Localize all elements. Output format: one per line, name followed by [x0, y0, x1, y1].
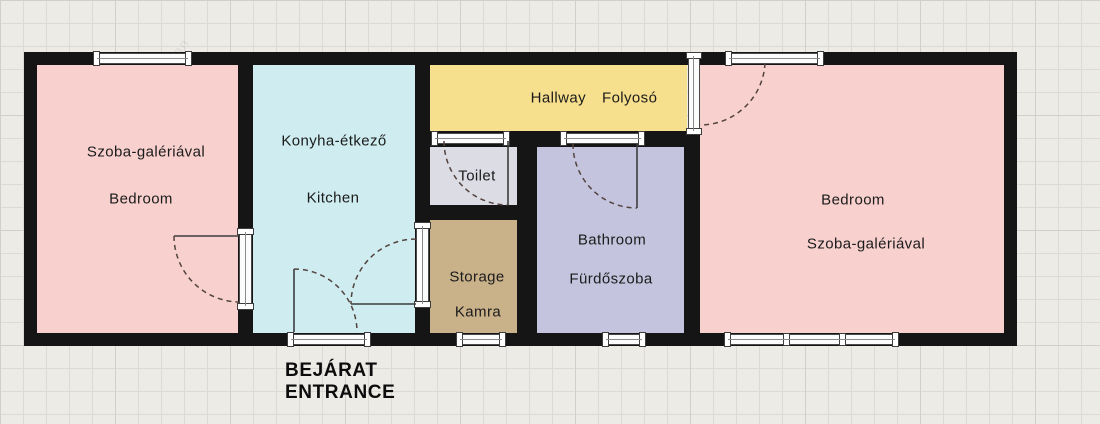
wall-outer-right — [1004, 52, 1017, 346]
wall-outer-left — [24, 52, 37, 346]
label-entrance-en: ENTRANCE — [285, 382, 395, 404]
door-opening-bedroom-left — [239, 230, 252, 308]
floor-plan: ingatlan ingatlan ingatlan ingatlan inga… — [0, 0, 1100, 424]
label-bedroom-right-en: Bedroom — [821, 192, 885, 209]
label-entrance: BEJÁRAT ENTRANCE — [285, 360, 395, 404]
label-hallway: Hallway Folyosó — [531, 90, 658, 107]
label-bathroom-en: Bathroom — [578, 232, 646, 249]
wall-bathroom-bedroom — [684, 131, 700, 333]
door-opening-storage — [416, 224, 429, 306]
label-bedroom-left-hu: Szoba-galériával — [87, 144, 205, 161]
label-bedroom-left-en: Bedroom — [109, 191, 173, 208]
label-storage-hu: Kamra — [455, 304, 501, 321]
window-bottom-bathroom — [604, 334, 644, 345]
wall-toilet-bathroom — [517, 131, 537, 333]
door-opening-hall-bedroom — [688, 54, 700, 133]
window-bottom-storage — [458, 334, 504, 345]
wall-toilet-storage — [415, 205, 537, 220]
label-entrance-hu: BEJÁRAT — [285, 360, 395, 382]
window-top-right-bedroom — [727, 53, 822, 64]
window-bottom-right-bedroom — [726, 334, 897, 345]
door-opening-bathroom — [562, 133, 643, 144]
label-kitchen-hu: Konyha-étkező — [281, 133, 386, 150]
label-storage-en: Storage — [449, 269, 504, 286]
label-hallway-hu: Folyosó — [602, 90, 657, 107]
label-bedroom-right-hu: Szoba-galériával — [807, 236, 925, 253]
label-kitchen-en: Kitchen — [307, 190, 360, 207]
window-top-left-bedroom — [95, 53, 190, 64]
door-opening-toilet — [433, 133, 508, 144]
label-bathroom-hu: Fürdőszoba — [569, 271, 652, 288]
label-hallway-en: Hallway — [531, 90, 586, 107]
door-opening-entrance — [289, 334, 369, 345]
label-toilet: Toilet — [458, 168, 495, 185]
